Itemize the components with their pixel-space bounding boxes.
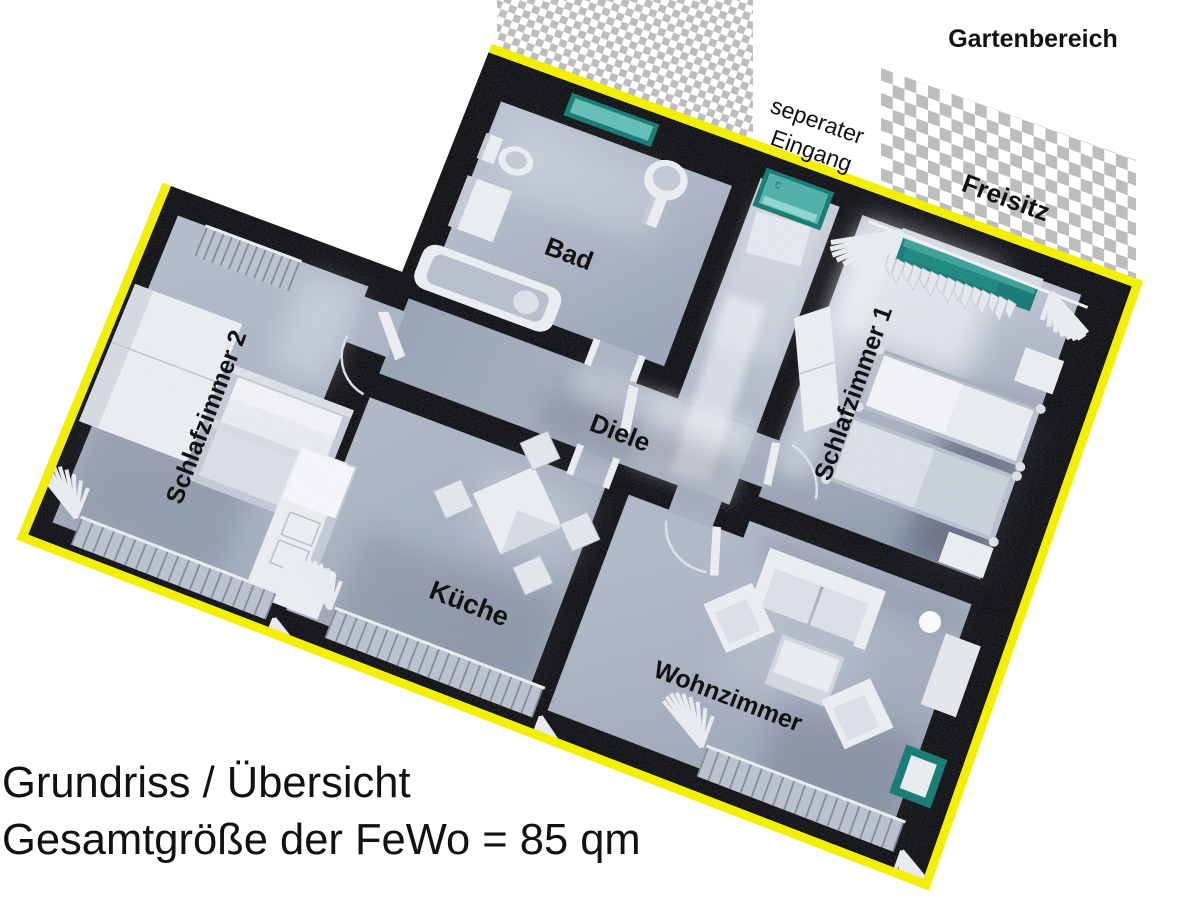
svg-text:Gesamtgröße der FeWo = 85 qm: Gesamtgröße der FeWo = 85 qm	[2, 816, 641, 864]
svg-text:Grundriss / Übersicht: Grundriss / Übersicht	[2, 759, 411, 807]
svg-text:Gartenbereich: Gartenbereich	[948, 25, 1118, 53]
